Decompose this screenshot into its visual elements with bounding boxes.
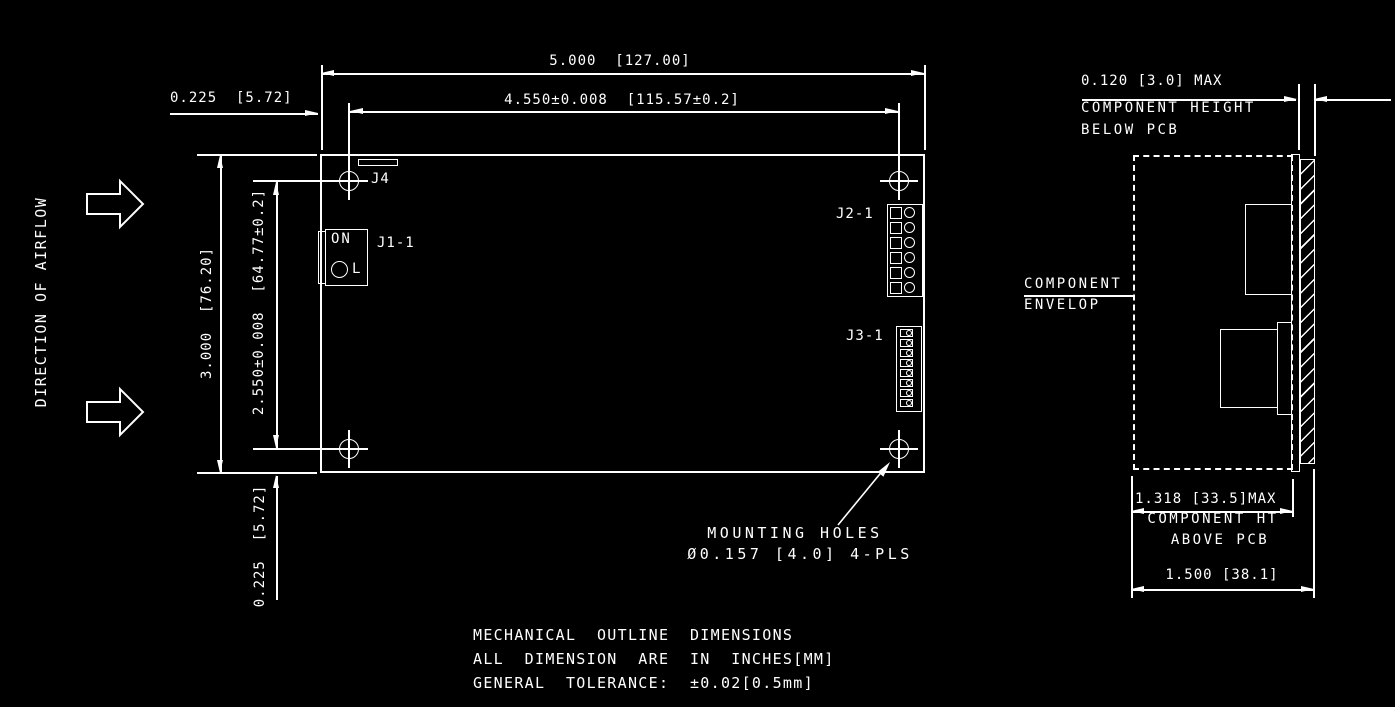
j2-pin-hole bbox=[904, 207, 915, 218]
dimension-line bbox=[1316, 99, 1391, 101]
mechanical-drawing: DIRECTION OF AIRFLOW J4 ON L J1-1 J2-1 bbox=[0, 0, 1395, 707]
j3-label: J3-1 bbox=[846, 329, 884, 344]
extension-line bbox=[1298, 84, 1300, 150]
mounting-holes-note-line2: Ø0.157 [4.0] 4-PLS bbox=[687, 546, 913, 563]
extension-line bbox=[321, 65, 323, 150]
j3-pin-hole bbox=[906, 330, 912, 336]
dim-board-height-text: 3.000 [76.20] bbox=[199, 247, 215, 379]
j3-pin-hole bbox=[906, 370, 912, 376]
dim-overall-thickness-text: 1.500 [38.1] bbox=[1165, 568, 1278, 583]
j3-pin-hole bbox=[906, 390, 912, 396]
envelope-label-line2: ENVELOP bbox=[1024, 298, 1101, 313]
j3-pin-hole bbox=[906, 400, 912, 406]
j2-pin-hole bbox=[904, 252, 915, 263]
dim-arrowhead bbox=[273, 182, 279, 195]
j2-pin bbox=[890, 237, 902, 249]
dim-below-pcb-text: 0.120 [3.0] MAX bbox=[1081, 74, 1222, 89]
dim-arrowhead bbox=[305, 110, 318, 116]
extension-line bbox=[898, 103, 900, 173]
envelope-label-line1: COMPONENT bbox=[1024, 277, 1122, 292]
j4-component bbox=[358, 159, 398, 166]
note-title: MECHANICAL OUTLINE DIMENSIONS bbox=[473, 627, 793, 644]
dim-arrowhead bbox=[885, 108, 898, 114]
j3-pin-hole bbox=[906, 380, 912, 386]
dim-arrowhead bbox=[273, 435, 279, 448]
j2-pin bbox=[890, 207, 902, 219]
extension-line bbox=[197, 154, 317, 156]
below-pcb-label-line2: BELOW PCB bbox=[1081, 123, 1179, 138]
dimension-line bbox=[276, 181, 278, 449]
below-pcb-label-line1: COMPONENT HEIGHT bbox=[1081, 101, 1256, 116]
dim-arrowhead bbox=[1284, 96, 1297, 102]
j3-pin-hole bbox=[906, 340, 912, 346]
mounting-holes-leader-line bbox=[830, 453, 896, 529]
dim-arrowhead bbox=[273, 475, 279, 488]
extension-line bbox=[1131, 476, 1133, 598]
j3-pin-hole bbox=[906, 360, 912, 366]
extension-line bbox=[1292, 479, 1294, 517]
dim-arrowhead bbox=[1131, 508, 1144, 514]
j1-switch-l-label: L bbox=[352, 262, 361, 277]
dim-arrowhead bbox=[911, 70, 924, 76]
dim-edge-to-hole-top-text: 0.225 [5.72] bbox=[170, 91, 293, 106]
dimension-line bbox=[321, 73, 925, 75]
dim-hole-span-x-text: 4.550±0.008 [115.57±0.2] bbox=[504, 93, 740, 108]
below-pcb-component-zone bbox=[1300, 159, 1315, 464]
j3-connector-side-profile bbox=[1220, 329, 1278, 408]
extension-line bbox=[924, 65, 926, 150]
dim-arrowhead bbox=[1131, 586, 1144, 592]
j1-switch-position-circle bbox=[331, 261, 348, 278]
extension-line bbox=[253, 448, 338, 450]
j3-pin-hole bbox=[906, 350, 912, 356]
airflow-direction-label: DIRECTION OF AIRFLOW bbox=[32, 197, 50, 408]
note-tolerance: GENERAL TOLERANCE: ±0.02[0.5mm] bbox=[473, 675, 814, 692]
dim-edge-to-hole-bottom-text: 0.225 [5.72] bbox=[252, 485, 268, 608]
extension-line bbox=[1313, 469, 1315, 598]
j2-pin-hole bbox=[904, 282, 915, 293]
component-envelope-outline bbox=[1133, 155, 1293, 470]
dim-arrowhead bbox=[321, 70, 334, 76]
j2-pin bbox=[890, 282, 902, 294]
pcb-board-outline bbox=[320, 154, 925, 473]
extension-line bbox=[253, 180, 338, 182]
extension-line bbox=[197, 472, 317, 474]
dim-board-width-text: 5.000 [127.00] bbox=[549, 54, 690, 69]
mounting-holes-note-line1: MOUNTING HOLES bbox=[707, 525, 882, 542]
hole-crosshair bbox=[898, 430, 900, 468]
j2-pin bbox=[890, 222, 902, 234]
airflow-arrow-icon bbox=[86, 178, 146, 230]
above-pcb-label-line1: COMPONENT HT bbox=[1147, 512, 1278, 527]
j2-pin bbox=[890, 267, 902, 279]
dim-arrowhead bbox=[350, 108, 363, 114]
note-units: ALL DIMENSION ARE IN INCHES[MM] bbox=[473, 651, 835, 668]
j2-label: J2-1 bbox=[836, 207, 874, 222]
j2-pin-hole bbox=[904, 237, 915, 248]
dimension-line bbox=[349, 111, 899, 113]
dimension-line bbox=[170, 113, 318, 115]
j2-pin-hole bbox=[904, 222, 915, 233]
extension-line bbox=[348, 103, 350, 173]
above-pcb-label-line2: ABOVE PCB bbox=[1171, 533, 1269, 548]
j4-label: J4 bbox=[371, 172, 390, 187]
dim-hole-span-y-text: 2.550±0.008 [64.77±0.2] bbox=[251, 189, 267, 415]
extension-line bbox=[1314, 84, 1316, 156]
dimension-line bbox=[1131, 589, 1314, 591]
j1-switch-on-label: ON bbox=[331, 232, 352, 247]
dimension-line bbox=[1082, 99, 1296, 101]
dim-arrowhead bbox=[217, 155, 223, 168]
dim-above-pcb-text: 1.318 [33.5]MAX bbox=[1135, 492, 1276, 507]
j2-pin-hole bbox=[904, 267, 915, 278]
j1-label: J1-1 bbox=[377, 236, 415, 251]
pcb-cross-section bbox=[1291, 154, 1300, 472]
j3-connector-flange-profile bbox=[1277, 322, 1292, 415]
airflow-arrow-icon bbox=[86, 386, 146, 438]
dimension-line bbox=[220, 155, 222, 473]
dimension-line bbox=[276, 476, 278, 600]
j2-pin bbox=[890, 252, 902, 264]
hole-crosshair bbox=[348, 430, 350, 468]
j2-connector-side-profile bbox=[1245, 204, 1292, 295]
dim-arrowhead bbox=[1314, 96, 1327, 102]
